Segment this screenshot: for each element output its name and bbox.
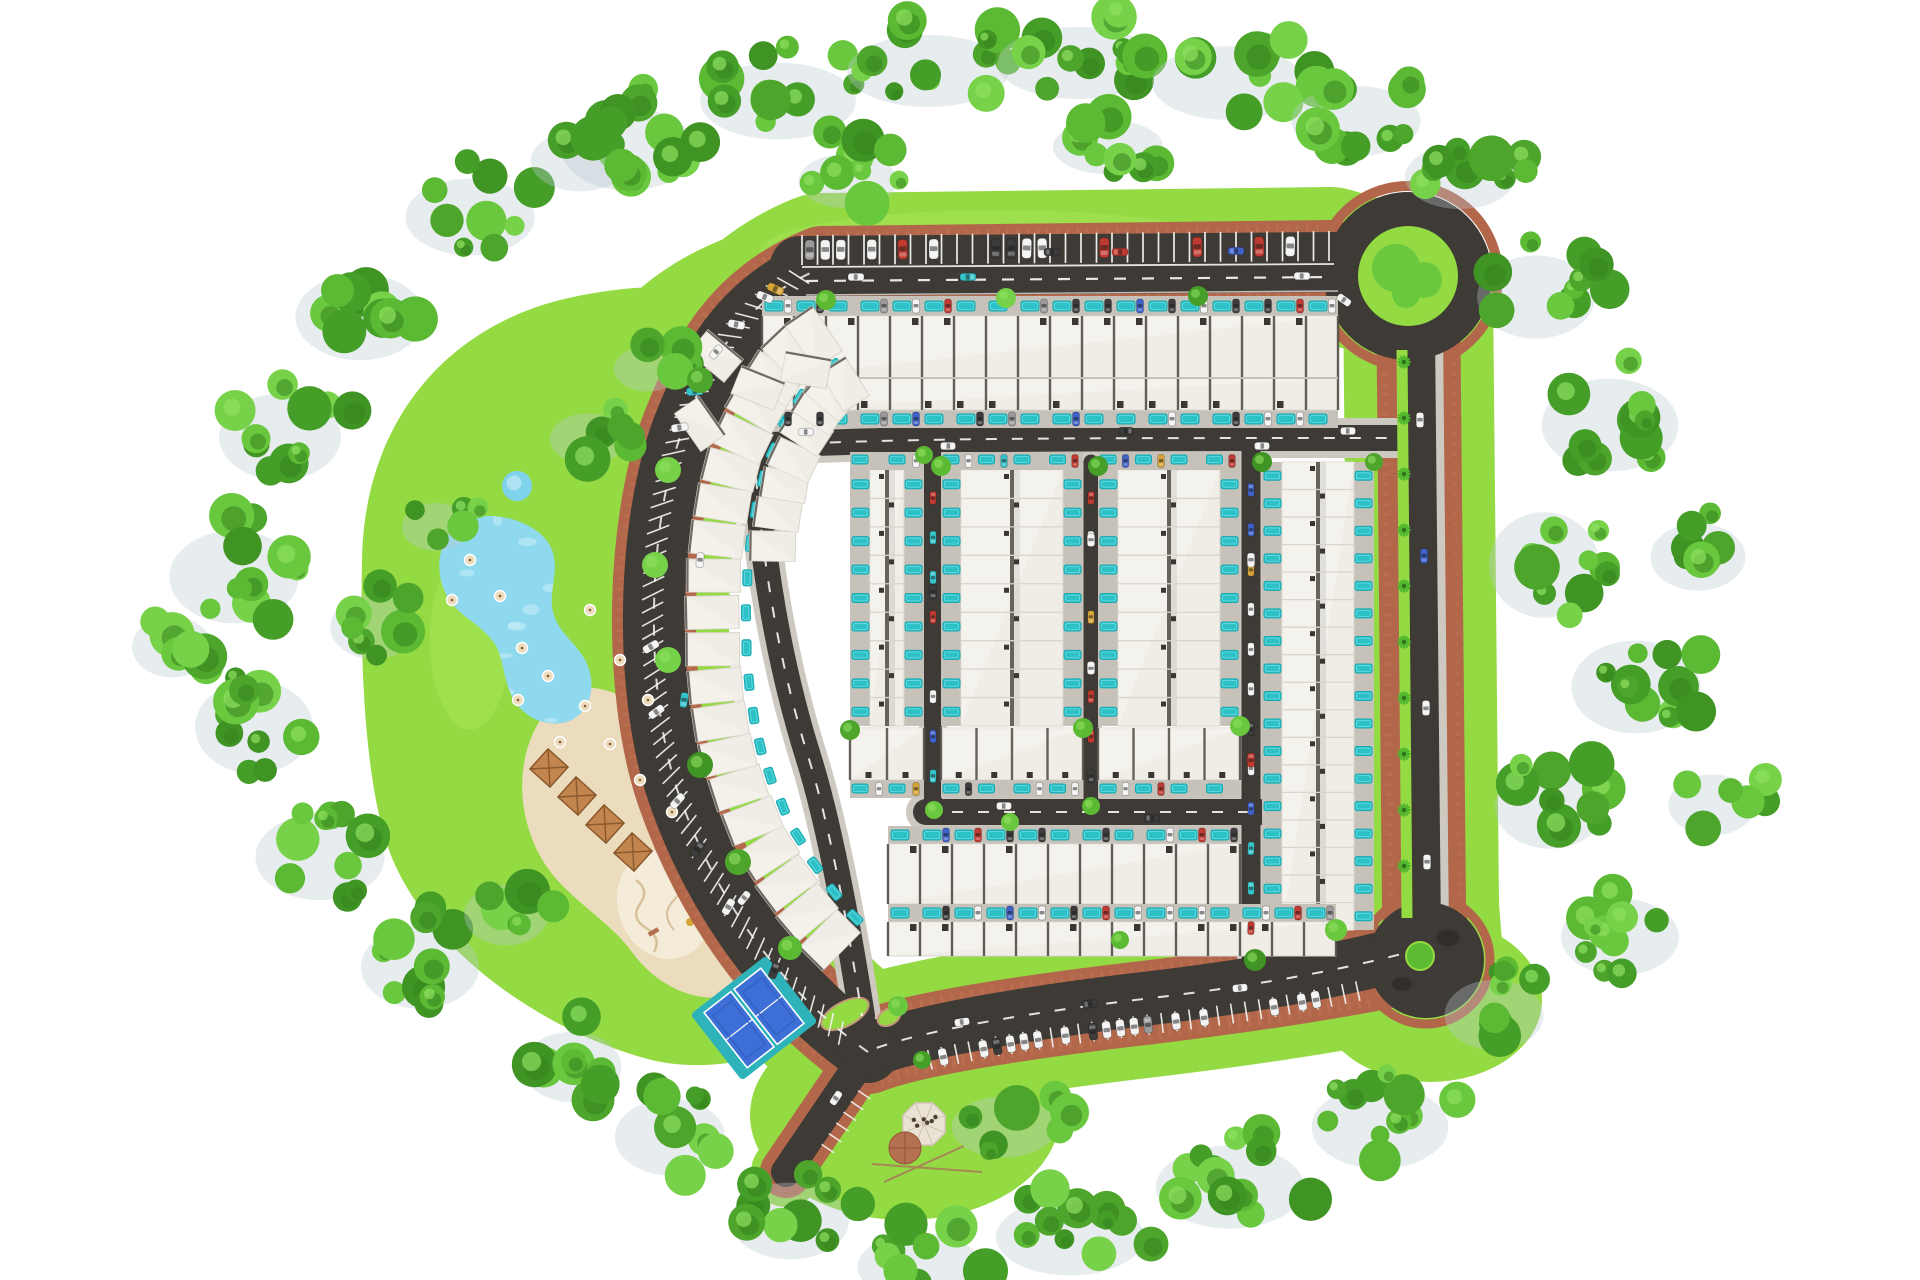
car (1248, 802, 1255, 815)
car (1248, 643, 1255, 656)
tree (1035, 77, 1059, 101)
tree (749, 41, 778, 70)
car (930, 611, 937, 624)
tree (466, 201, 506, 241)
car (975, 828, 982, 842)
car (1247, 753, 1255, 767)
tree (910, 59, 941, 90)
tree (287, 386, 331, 430)
car (1233, 299, 1240, 313)
car (1233, 412, 1240, 426)
car (1115, 1019, 1126, 1037)
tree (1681, 635, 1720, 674)
tree (480, 234, 508, 262)
car (1036, 783, 1043, 796)
tree (1577, 791, 1610, 824)
tree (200, 598, 220, 618)
tree (253, 758, 277, 782)
tree (1514, 544, 1560, 590)
car (1006, 238, 1016, 258)
car (1022, 238, 1032, 258)
car (1119, 427, 1134, 435)
tree (223, 527, 262, 566)
tree (276, 817, 319, 860)
tree (1030, 1169, 1069, 1208)
car (930, 491, 937, 504)
car (876, 783, 883, 796)
car (1247, 553, 1255, 567)
car (1247, 842, 1254, 855)
tree (1628, 643, 1648, 663)
tree (1317, 1111, 1338, 1132)
car (1169, 299, 1176, 313)
tree (321, 274, 354, 307)
tree (643, 1078, 680, 1115)
tree (341, 617, 363, 639)
tree (1082, 1236, 1117, 1271)
pool (744, 674, 754, 691)
car (1082, 999, 1098, 1008)
car (1265, 299, 1272, 313)
tree (172, 631, 209, 668)
tree (1270, 21, 1308, 59)
car (1039, 828, 1046, 842)
car (1137, 299, 1144, 313)
housing-slab (1262, 462, 1374, 930)
tree (537, 890, 569, 922)
tree (455, 149, 480, 174)
tree (1479, 292, 1515, 328)
car (1329, 299, 1336, 313)
car (898, 239, 908, 259)
car (1199, 1009, 1210, 1027)
housing-slab (940, 452, 1084, 798)
car (943, 828, 950, 842)
tree (665, 1155, 706, 1196)
car (977, 412, 984, 426)
tree (422, 177, 448, 203)
car (1232, 983, 1248, 992)
car (679, 692, 689, 708)
housing-slab (1097, 452, 1241, 798)
car (1087, 534, 1095, 547)
car (1088, 1023, 1099, 1041)
car (1231, 828, 1238, 842)
car (913, 412, 920, 426)
car (1341, 427, 1356, 435)
car (1087, 491, 1094, 504)
tree (1066, 103, 1106, 143)
tree (430, 204, 463, 237)
tree (581, 1065, 620, 1104)
car (1228, 247, 1244, 255)
tree (686, 1086, 704, 1104)
tree (1359, 1139, 1401, 1181)
tree (393, 583, 424, 614)
tree (1494, 961, 1514, 981)
car (1072, 783, 1079, 796)
car (1248, 683, 1255, 696)
road-a (752, 438, 1398, 446)
car (867, 240, 877, 260)
tree (1289, 1178, 1332, 1221)
car (1297, 412, 1304, 426)
car (1122, 783, 1129, 796)
car (1073, 412, 1080, 426)
car (1416, 413, 1424, 428)
car (1248, 483, 1255, 496)
car (1229, 455, 1236, 468)
car (1294, 272, 1310, 280)
car (1255, 442, 1270, 450)
tree (1469, 135, 1515, 181)
car (1122, 455, 1129, 468)
tree (366, 645, 387, 666)
car (1167, 906, 1174, 920)
car (836, 240, 846, 260)
car (1044, 248, 1060, 256)
tree (607, 413, 635, 441)
car (881, 299, 888, 313)
car (1254, 237, 1264, 257)
car (1192, 237, 1202, 257)
tree (1677, 511, 1707, 541)
car (1129, 1017, 1140, 1035)
car (975, 906, 982, 920)
car (1009, 412, 1016, 426)
tree (405, 500, 425, 520)
tree (1557, 602, 1583, 628)
car (930, 531, 937, 544)
car (1072, 455, 1079, 468)
tree (1673, 770, 1701, 798)
car (1071, 906, 1078, 920)
car (1420, 549, 1428, 564)
car (785, 412, 792, 426)
car (1101, 1021, 1112, 1039)
tree (334, 852, 362, 880)
car (1088, 611, 1095, 624)
car (1248, 603, 1255, 616)
car (1135, 906, 1142, 920)
car (954, 1017, 970, 1027)
car (1295, 906, 1302, 920)
car (941, 442, 956, 450)
site-plan-canvas (0, 0, 1920, 1280)
right-road-median (1402, 350, 1407, 918)
tree (1226, 93, 1263, 130)
car (930, 571, 937, 584)
tree (698, 1133, 734, 1169)
car (1297, 299, 1304, 313)
tree (1579, 550, 1599, 570)
car (945, 299, 952, 313)
site-plan-rendering (0, 0, 1920, 1280)
car (1265, 412, 1272, 426)
car (1007, 906, 1014, 920)
car (960, 273, 976, 281)
car (1247, 921, 1254, 934)
car (965, 455, 972, 468)
road-median (1402, 350, 1407, 918)
car (943, 906, 950, 920)
car (929, 730, 936, 743)
car (997, 802, 1012, 810)
car (965, 783, 972, 796)
tree (447, 510, 478, 541)
tree (1676, 691, 1716, 731)
car (913, 299, 920, 313)
tree (853, 162, 872, 181)
car (1145, 814, 1160, 822)
pool (748, 707, 759, 724)
tree (475, 881, 504, 910)
car (1248, 523, 1255, 536)
housing-slab (849, 452, 925, 798)
tree (1327, 1079, 1347, 1099)
car (1143, 1016, 1153, 1034)
car (1169, 412, 1176, 426)
tree (841, 1187, 875, 1221)
tree (874, 134, 907, 167)
car (1263, 906, 1270, 920)
car (1001, 455, 1008, 468)
car (929, 585, 937, 599)
car (799, 428, 814, 436)
tree (751, 80, 791, 120)
car (1167, 828, 1174, 842)
tree (1644, 908, 1668, 932)
car (820, 240, 830, 260)
car (1041, 299, 1048, 313)
tree (571, 116, 616, 161)
car (1073, 299, 1080, 313)
car (1285, 236, 1295, 256)
car (1103, 906, 1110, 920)
tree (1393, 124, 1413, 144)
tree-cluster (1495, 741, 1626, 848)
tree (1514, 159, 1538, 183)
car (1087, 662, 1095, 675)
car (785, 299, 792, 313)
tree (253, 599, 294, 640)
car (1105, 299, 1112, 313)
car (1099, 238, 1109, 258)
tree (505, 216, 525, 236)
car (696, 552, 705, 567)
tree (292, 802, 314, 824)
tree (1718, 778, 1743, 803)
car (913, 783, 920, 796)
car (1103, 828, 1110, 842)
tree (1479, 1003, 1510, 1034)
tree (1569, 741, 1615, 787)
tree (275, 863, 305, 893)
tree (845, 181, 890, 226)
tree (1653, 640, 1682, 669)
tree (322, 309, 366, 353)
car (817, 412, 824, 426)
tree (1371, 1126, 1390, 1145)
housing-bottom-rows (887, 826, 1241, 904)
car (1248, 882, 1255, 895)
car (1158, 783, 1165, 796)
car (1422, 701, 1430, 716)
car (1087, 690, 1094, 703)
tree (1341, 131, 1371, 161)
tree (1547, 292, 1575, 320)
tree (994, 1085, 1040, 1131)
tree (227, 578, 248, 599)
car (1112, 248, 1128, 256)
car (1327, 906, 1334, 920)
tree (373, 918, 415, 960)
tree (763, 1208, 797, 1242)
tree (1685, 810, 1721, 846)
car (848, 273, 864, 281)
car (1423, 855, 1431, 870)
car (930, 690, 937, 703)
car (1199, 828, 1206, 842)
car (1199, 906, 1206, 920)
tree (913, 1233, 940, 1260)
car (1171, 1012, 1182, 1030)
car (1158, 455, 1165, 468)
car (1087, 769, 1094, 782)
car (1039, 906, 1046, 920)
car (930, 770, 937, 783)
car (929, 239, 939, 259)
car (805, 240, 815, 260)
car (881, 412, 888, 426)
tree (427, 528, 449, 550)
car (991, 238, 1001, 258)
